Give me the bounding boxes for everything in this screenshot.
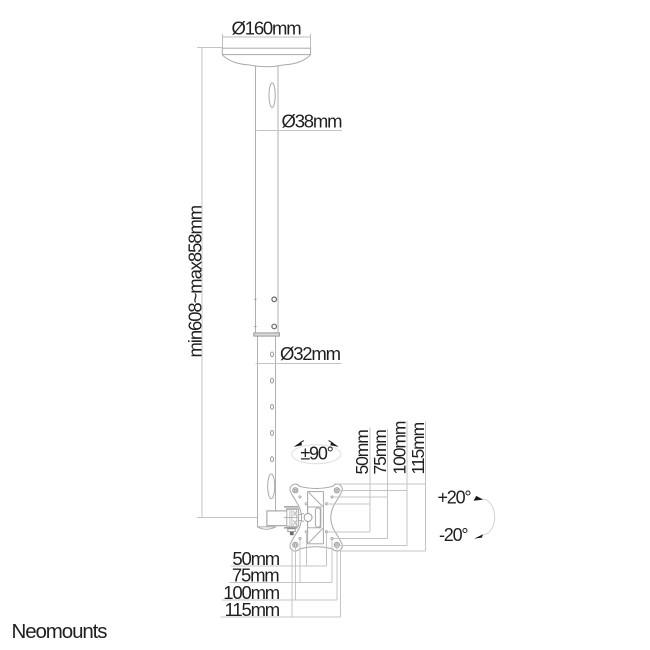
svg-text:Ø32mm: Ø32mm <box>280 343 341 364</box>
svg-text:-20°: -20° <box>439 525 468 545</box>
svg-text:75mm: 75mm <box>370 430 390 475</box>
svg-text:+20°: +20° <box>438 488 472 508</box>
svg-text:Ø38mm: Ø38mm <box>282 111 343 132</box>
svg-text:Neomounts: Neomounts <box>12 620 108 643</box>
svg-text:100mm: 100mm <box>390 421 410 474</box>
svg-text:50mm: 50mm <box>352 430 372 475</box>
svg-text:±90°: ±90° <box>300 444 333 464</box>
svg-text:min608~max858mm: min608~max858mm <box>185 205 206 357</box>
svg-text:115mm: 115mm <box>225 599 280 620</box>
svg-text:115mm: 115mm <box>408 422 428 474</box>
svg-text:Ø160mm: Ø160mm <box>232 18 302 39</box>
